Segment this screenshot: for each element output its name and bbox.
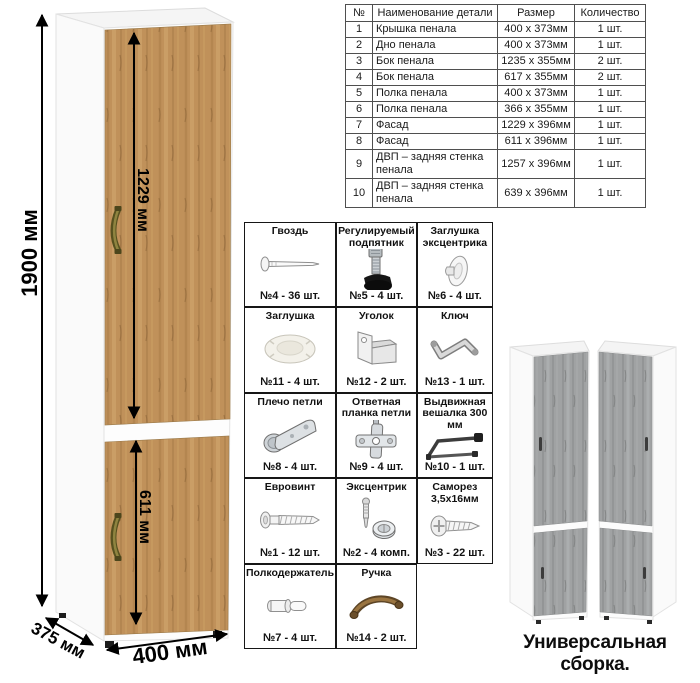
part-qty: 2 шт. — [575, 70, 646, 86]
adjustable-foot-icon — [338, 249, 415, 290]
hardware-item-count: №13 - 1 шт. — [425, 376, 485, 388]
hardware-item: Заглушка эксцентрика№6 - 4 шт. — [417, 222, 493, 307]
shelf-pin-icon — [246, 579, 334, 632]
part-name: Бок пенала — [373, 54, 498, 70]
part-qty: 1 шт. — [575, 22, 646, 38]
cabinet-upper-door — [105, 24, 231, 425]
part-qty: 1 шт. — [575, 134, 646, 150]
hardware-item: Регулируемый подпятник№5 - 4 шт. — [336, 222, 417, 307]
hardware-item-name: Ручка — [361, 568, 391, 580]
part-qty: 1 шт. — [575, 179, 646, 208]
cabinet-lower-door — [105, 436, 229, 635]
part-size: 400 х 373мм — [498, 86, 575, 102]
hardware-item-name: Саморез 3,5х16мм — [419, 482, 491, 505]
variant-cabinet-right — [598, 341, 676, 624]
part-number: 6 — [346, 102, 373, 118]
part-qty: 1 шт. — [575, 38, 646, 54]
part-name: Полка пенала — [373, 86, 498, 102]
parts-table-header-cell: Размер — [498, 5, 575, 22]
hardware-item-count: №4 - 36 шт. — [260, 290, 320, 302]
part-qty: 1 шт. — [575, 86, 646, 102]
hardware-item: Выдвижная вешалка 300 мм№10 - 1 шт. — [417, 393, 493, 478]
hardware-item-count: №10 - 1 шт. — [425, 461, 485, 473]
part-size: 400 х 373мм — [498, 22, 575, 38]
hardware-item-name: Заглушка — [266, 311, 315, 323]
hardware-item-name: Ключ — [441, 311, 469, 323]
part-number: 4 — [346, 70, 373, 86]
hinge-plate-icon — [338, 420, 415, 461]
hardware-item: Гвоздь№4 - 36 шт. — [244, 222, 336, 307]
hardware-item: Евровинт№1 - 12 шт. — [244, 478, 336, 563]
nail-icon — [246, 238, 334, 291]
part-size: 1235 х 355мм — [498, 54, 575, 70]
part-size: 611 х 396мм — [498, 134, 575, 150]
part-name: ДВП – задняя стенка пенала — [373, 179, 498, 208]
hex-key-icon — [419, 323, 491, 376]
hardware-item: Эксцентрик№2 - 4 комп. — [336, 478, 417, 563]
hardware-item-count: №7 - 4 шт. — [263, 632, 317, 644]
hardware-item-count: №8 - 4 шт. — [263, 461, 317, 473]
part-qty: 1 шт. — [575, 118, 646, 134]
part-number: 7 — [346, 118, 373, 134]
variant-door-handle — [541, 567, 544, 579]
hardware-item-name: Ответная планка петли — [338, 397, 415, 420]
part-number: 10 — [346, 179, 373, 208]
parts-table-header-cell: Наименование детали — [373, 5, 498, 22]
hardware-item-count: №1 - 12 шт. — [260, 547, 320, 559]
hardware-item-count: №2 - 4 комп. — [343, 547, 410, 559]
self-tapping-screw-icon — [419, 505, 491, 546]
hardware-item: Уголок№12 - 2 шт. — [336, 307, 417, 392]
cabinet-foot — [105, 641, 114, 648]
hinge-arm-icon — [246, 408, 334, 461]
hardware-item: Ответная планка петли№9 - 4 шт. — [336, 393, 417, 478]
part-number: 5 — [346, 86, 373, 102]
part-number: 2 — [346, 38, 373, 54]
hardware-item-count: №11 - 4 шт. — [260, 376, 320, 388]
pullout-hanger-icon — [419, 431, 491, 461]
hardware-item-name: Гвоздь — [272, 226, 309, 238]
variant-door-handle — [645, 437, 648, 451]
part-name: Крышка пенала — [373, 22, 498, 38]
hardware-grid: Гвоздь№4 - 36 шт.Регулируемый подпятник№… — [244, 222, 493, 649]
variant-cabinet-left — [510, 341, 589, 624]
hardware-item-name: Выдвижная вешалка 300 мм — [419, 397, 491, 432]
cabinet-foot — [59, 613, 66, 618]
table-row: 5Полка пенала400 х 373мм1 шт. — [346, 86, 646, 102]
corner-bracket-icon — [338, 323, 415, 376]
lower-door-dimension-label: 611 мм — [135, 490, 153, 544]
table-row: 6Полка пенала366 х 355мм1 шт. — [346, 102, 646, 118]
table-row: 4Бок пенала617 х 355мм2 шт. — [346, 70, 646, 86]
part-size: 639 х 396мм — [498, 179, 575, 208]
main-cabinet — [56, 8, 233, 648]
part-size: 366 х 355мм — [498, 102, 575, 118]
table-row: 3Бок пенала1235 х 355мм2 шт. — [346, 54, 646, 70]
hardware-item-name: Евровинт — [265, 482, 316, 494]
hardware-item-name: Регулируемый подпятник — [338, 226, 415, 249]
handle-icon — [338, 579, 415, 632]
table-row: 10ДВП – задняя стенка пенала639 х 396мм1… — [346, 179, 646, 208]
table-row: 8Фасад611 х 396мм1 шт. — [346, 134, 646, 150]
part-name: Фасад — [373, 118, 498, 134]
hardware-item: Ручка№14 - 2 шт. — [336, 564, 417, 649]
variant-door-handle — [539, 437, 542, 451]
variant-door-handle — [643, 567, 646, 579]
part-size: 617 х 355мм — [498, 70, 575, 86]
hardware-item-count: №14 - 2 шт. — [346, 632, 406, 644]
part-size: 400 х 373мм — [498, 38, 575, 54]
part-name: ДВП – задняя стенка пенала — [373, 150, 498, 179]
hardware-item: Плечо петли№8 - 4 шт. — [244, 393, 336, 478]
euro-screw-icon — [246, 494, 334, 547]
part-qty: 2 шт. — [575, 54, 646, 70]
hardware-item-name: Заглушка эксцентрика — [419, 226, 491, 249]
hardware-item-count: №6 - 4 шт. — [428, 290, 482, 302]
parts-table-body: 1Крышка пенала400 х 373мм1 шт.2Дно пенал… — [346, 22, 646, 208]
parts-table: №Наименование деталиРазмерКоличество 1Кр… — [345, 4, 646, 208]
assembly-caption: Универсальная сборка. — [487, 632, 700, 676]
upper-door-dimension-label: 1229 мм — [133, 168, 151, 232]
part-number: 3 — [346, 54, 373, 70]
part-qty: 1 шт. — [575, 150, 646, 179]
parts-table-header-row: №Наименование деталиРазмерКоличество — [346, 5, 646, 22]
hardware-item: Заглушка№11 - 4 шт. — [244, 307, 336, 392]
part-number: 8 — [346, 134, 373, 150]
table-row: 9ДВП – задняя стенка пенала1257 х 396мм1… — [346, 150, 646, 179]
cam-cap-icon — [419, 249, 491, 290]
cam-lock-icon — [338, 494, 415, 547]
part-name: Полка пенала — [373, 102, 498, 118]
part-size: 1229 х 396мм — [498, 118, 575, 134]
hardware-item-name: Эксцентрик — [346, 482, 406, 494]
hardware-item-count: №5 - 4 шт. — [349, 290, 403, 302]
hardware-item-name: Уголок — [359, 311, 394, 323]
part-qty: 1 шт. — [575, 102, 646, 118]
hardware-item-count: №12 - 2 шт. — [346, 376, 406, 388]
part-size: 1257 х 396мм — [498, 150, 575, 179]
part-number: 9 — [346, 150, 373, 179]
hardware-item-name: Плечо петли — [257, 397, 322, 409]
parts-table-header-cell: № — [346, 5, 373, 22]
cap-icon — [246, 323, 334, 376]
hardware-item-count: №3 - 22 шт. — [425, 547, 485, 559]
hardware-item-count: №9 - 4 шт. — [349, 461, 403, 473]
part-name: Дно пенала — [373, 38, 498, 54]
height-dimension-label: 1900 мм — [17, 209, 43, 297]
cabinet-side-face — [56, 14, 104, 641]
assembly-instruction-sheet: 1900 мм 1229 мм 611 мм 400 мм 375 мм №На… — [0, 0, 700, 683]
part-name: Фасад — [373, 134, 498, 150]
table-row: 7Фасад1229 х 396мм1 шт. — [346, 118, 646, 134]
part-name: Бок пенала — [373, 70, 498, 86]
hardware-item: Полкодержатель№7 - 4 шт. — [244, 564, 336, 649]
table-row: 1Крышка пенала400 х 373мм1 шт. — [346, 22, 646, 38]
hardware-item: Саморез 3,5х16мм№3 - 22 шт. — [417, 478, 493, 563]
part-number: 1 — [346, 22, 373, 38]
parts-table-header-cell: Количество — [575, 5, 646, 22]
hardware-item: Ключ№13 - 1 шт. — [417, 307, 493, 392]
hardware-item-name: Полкодержатель — [246, 568, 334, 580]
table-row: 2Дно пенала400 х 373мм1 шт. — [346, 38, 646, 54]
